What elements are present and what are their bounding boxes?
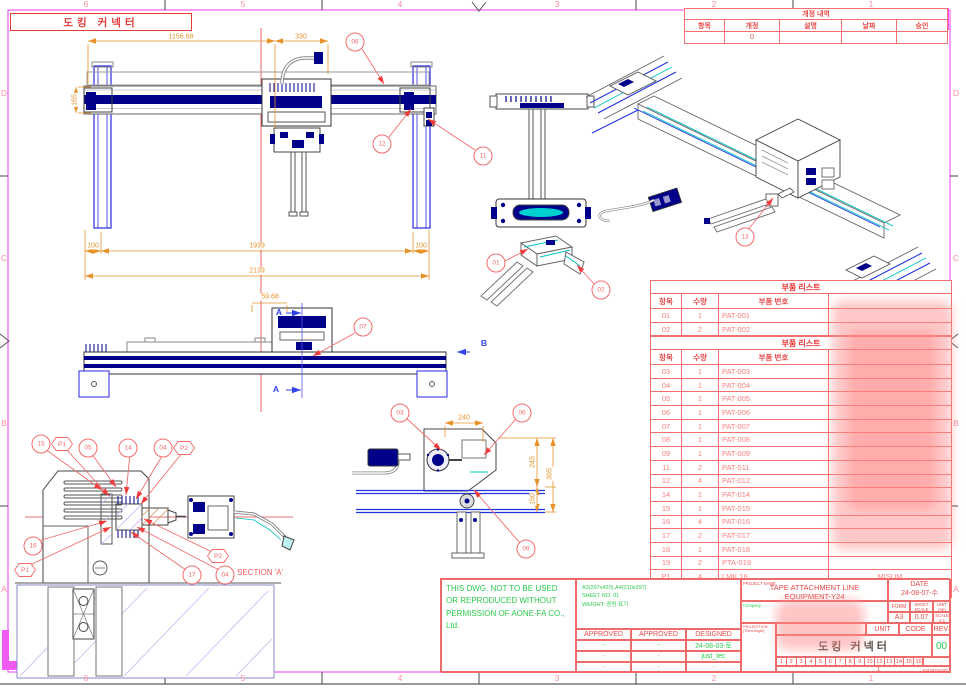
- balloon-02: 02: [592, 281, 611, 300]
- frame-row-label: A: [953, 584, 959, 594]
- date-label: DATE: [889, 581, 950, 588]
- balloon-16: 16: [24, 537, 43, 556]
- frame-col-label: 6: [84, 0, 89, 9]
- paper-info: A3(297x420),A4(210x297): [582, 584, 735, 592]
- sheet-count-strip: 1 A3(297x420): [776, 666, 951, 673]
- date-value: 24-08-07-수: [889, 588, 950, 598]
- frame-row-label: C: [1, 253, 7, 263]
- copyright-note: THIS DWG. NOT TO BE USED OR REPRODUCED W…: [442, 580, 575, 636]
- dim-total: 2139: [248, 268, 266, 275]
- sheet-count: 1: [877, 667, 880, 673]
- balloon-07: 07: [354, 318, 373, 337]
- balloon-14: 14: [119, 439, 138, 458]
- drawing-sheet: 6 5 4 3 2 1 6 5 4 3 2 1 D C B A D C B A …: [0, 0, 966, 700]
- sheet-number-cell: 1: [777, 658, 787, 665]
- dim-detail-total: 395: [547, 467, 554, 481]
- scale-cell: SCALE 1:1: [933, 612, 951, 623]
- frame-row-label: A: [1, 584, 7, 594]
- revision-table: 개정 내역 항목 개정 설명 날짜 승인 0: [684, 8, 948, 44]
- dim-beam-height: 165: [72, 93, 79, 107]
- redacted-region: [776, 600, 864, 650]
- projection-cell: PROJECTION [Third Angle]: [741, 623, 776, 673]
- frame-row-label: C: [953, 253, 959, 263]
- dim-right-col: 100: [414, 243, 428, 250]
- dim-detail-width: 240: [457, 415, 471, 422]
- designed-header: DESIGNED: [686, 629, 741, 640]
- balloon-04: 04: [216, 566, 235, 585]
- rev-label: REV.: [932, 623, 951, 635]
- designed-date: 24-08-03-토: [686, 640, 741, 651]
- dim-top-width: 1156.68: [168, 34, 195, 41]
- section-arrow-a-top: A: [276, 307, 282, 317]
- sheet-no: SHEET NO. 01: [582, 592, 735, 600]
- sheet-number-strip: 123456789101213141516: [776, 657, 923, 666]
- sheet-number-cell: 10: [865, 658, 875, 665]
- dim-detail-lower: 150: [530, 492, 537, 506]
- revision-table-title: 개정 내역: [685, 9, 947, 20]
- frame-col-label: 5: [241, 673, 246, 683]
- code-label: CODE: [899, 623, 932, 635]
- title-block: THIS DWG. NOT TO BE USED OR REPRODUCED W…: [440, 578, 950, 672]
- balloon-05: 05: [79, 439, 98, 458]
- frame-col-label: 2: [712, 673, 717, 683]
- approved-header: APPROVED: [576, 629, 631, 640]
- balloon-17: 17: [183, 566, 202, 585]
- sheet-number-cell: 6: [826, 658, 836, 665]
- balloon-13: 13: [736, 228, 755, 247]
- frame-col-label: 3: [555, 673, 560, 683]
- balloon-12: 12: [373, 135, 392, 154]
- frame-row-label: D: [1, 88, 7, 98]
- drawing-title-box: 도킹 커넥터: [10, 13, 192, 31]
- balloon-09: 09: [517, 540, 536, 559]
- copyright-cell: THIS DWG. NOT TO BE USED OR REPRODUCED W…: [441, 579, 576, 673]
- project-name-label: PROJECT NAME: [743, 581, 776, 586]
- sheet-number-cell: 14: [895, 658, 905, 665]
- parts-list-title: 부품 리스트: [651, 281, 951, 294]
- date-cell: DATE 24-08-07-수: [888, 579, 951, 601]
- project-name-cell: PROJECT NAME TAPE ATTACHMENT LINE EQUIPM…: [741, 579, 888, 601]
- dim-detail-upper: 245: [530, 455, 537, 469]
- sheet-number-cell: 5: [816, 658, 826, 665]
- frame-row-label: D: [953, 88, 959, 98]
- sheet-number-cell: 13: [885, 658, 895, 665]
- drawing-title-text: 도킹 커넥터: [63, 15, 138, 30]
- frame-col-label: 6: [84, 673, 89, 683]
- revision-table-header: 항목 개정 설명 날짜 승인: [685, 20, 947, 32]
- balloon-08: 08: [346, 33, 365, 52]
- sheet-scale-label: SHEET SCALE: [910, 601, 933, 612]
- dim-left-col: 100: [86, 243, 100, 250]
- sheet-number-cell: 4: [806, 658, 816, 665]
- dim-carriage-offset: 59.68: [260, 294, 280, 301]
- frame-col-label: 5: [241, 0, 246, 9]
- dim-span: 1939: [248, 243, 266, 250]
- sheet-number-cell: 9: [855, 658, 865, 665]
- frame-row-label: B: [953, 418, 959, 428]
- frame-col-label: 1: [869, 673, 874, 683]
- view-arrow-b: B: [481, 338, 487, 348]
- balloon-03: 03: [391, 404, 410, 423]
- frame-col-label: 4: [398, 673, 403, 683]
- rev-value: 00: [932, 635, 951, 657]
- frame-col-label: 3: [555, 0, 560, 9]
- unit-cell: UNIT mm: [933, 601, 951, 612]
- balloon-01: 01: [487, 254, 506, 273]
- section-a-label: SECTION 'A': [237, 568, 283, 577]
- section-arrow-a-bottom: A: [273, 384, 279, 394]
- redacted-region: [848, 330, 936, 510]
- projection-label: PROJECTION [Third Angle]: [743, 625, 775, 633]
- unit2-label: UNIT: [866, 623, 899, 635]
- sheet-info-cell: A3(297x420),A4(210x297) SHEET NO. 01 WEI…: [576, 579, 741, 629]
- balloon-15: 15: [32, 435, 51, 454]
- sheet-number-cell: 7: [836, 658, 846, 665]
- weight-info: WEIGHT: 중량 표기: [582, 601, 735, 609]
- revision-table-row: 0: [685, 32, 947, 43]
- balloon-11: 11: [474, 147, 493, 166]
- table-row: 19 2 PTA-019: [651, 557, 951, 571]
- frame-col-label: 4: [398, 0, 403, 9]
- form-label: FORM: [888, 601, 910, 612]
- sheet-number-cell: 12: [875, 658, 885, 665]
- designer-name: just_tec: [686, 651, 741, 662]
- balloon-04: 04: [154, 439, 173, 458]
- sheet-number-cell: 2: [787, 658, 797, 665]
- frame-row-label: B: [1, 418, 7, 428]
- company-label: Company: [743, 603, 761, 608]
- sheet-scale-value: 0.07: [910, 612, 933, 623]
- sheet-number-cell: 15: [904, 658, 914, 665]
- form-value: A3: [888, 612, 910, 623]
- dim-top-offset: 330: [294, 34, 308, 41]
- paper-size: A3(297x420): [922, 668, 948, 673]
- balloon-06: 06: [513, 404, 532, 423]
- sheet-number-cell: 8: [846, 658, 856, 665]
- approved-header: APPROVED: [631, 629, 686, 640]
- sheet-number-cell: 3: [797, 658, 807, 665]
